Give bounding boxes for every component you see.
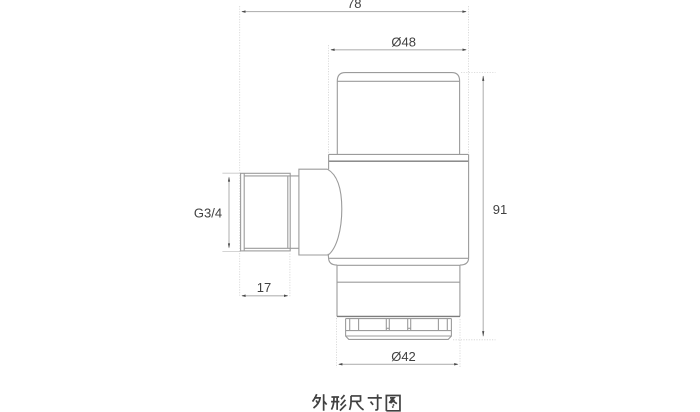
svg-text:78: 78 xyxy=(347,0,361,11)
svg-text:Ø48: Ø48 xyxy=(391,34,416,49)
svg-text:G3/4: G3/4 xyxy=(194,205,222,220)
svg-text:Ø42: Ø42 xyxy=(391,349,416,364)
svg-text:91: 91 xyxy=(493,202,507,217)
svg-text:17: 17 xyxy=(257,280,271,295)
